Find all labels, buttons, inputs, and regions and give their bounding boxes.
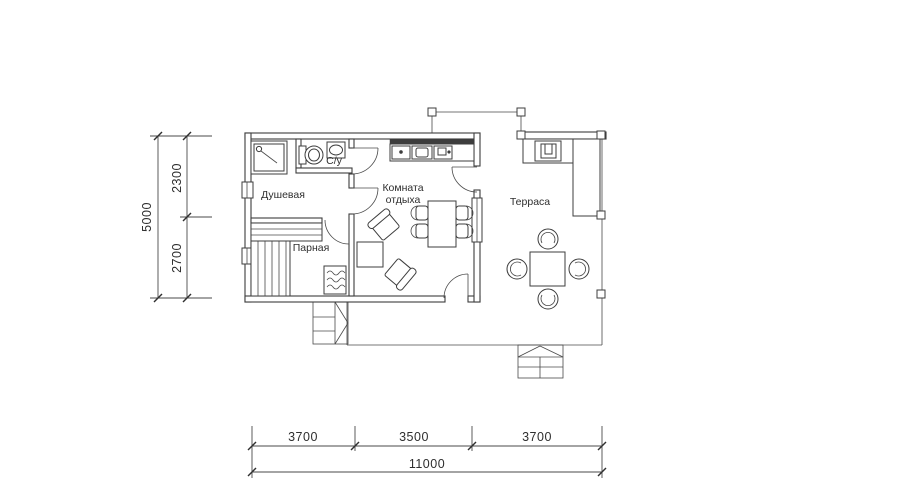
floor-plan-drawing: Душевая С/у Парная Комната отдыха Террас…: [0, 0, 900, 502]
dim-width-middle: 3500: [399, 430, 429, 444]
terrace-chair-icon: [507, 259, 527, 279]
room-label-wc: С/у: [326, 155, 343, 167]
dim-height-top: 2300: [170, 163, 184, 193]
door-arc: [352, 188, 378, 214]
terrace-side-counter: [573, 139, 600, 216]
canopy-outline: [428, 108, 525, 133]
terrace-chair-icon: [538, 229, 558, 249]
grill-icon: [535, 141, 561, 161]
window: [472, 198, 482, 242]
dim-width-right: 3700: [522, 430, 552, 444]
door-arc: [444, 274, 468, 298]
door-arc: [452, 167, 477, 192]
armchair-icon: [383, 257, 417, 292]
kitchen-counter-icon: [390, 139, 474, 161]
door-arc: [325, 220, 349, 244]
chair-icon: [411, 206, 428, 220]
terrace-table-icon: [530, 252, 565, 286]
entrance-steps-icon: [313, 302, 348, 344]
armchair-icon: [367, 208, 402, 242]
shower-cabin-icon: [251, 141, 287, 174]
door-arc: [352, 148, 378, 174]
room-label-shower: Душевая: [261, 189, 305, 201]
terrace-chair-icon: [569, 259, 589, 279]
dimension-bottom: 3700 3500 3700 11000: [248, 426, 606, 478]
dim-total-width: 11000: [409, 457, 445, 471]
dimension-left: 5000 2300 2700: [140, 132, 212, 302]
room-label-lounge-line2: отдыха: [386, 194, 421, 206]
terrace-chair-icon: [538, 289, 558, 309]
dining-table-icon: [411, 201, 473, 247]
dim-height-bottom: 2700: [170, 243, 184, 273]
terrace-steps-icon: [518, 345, 563, 378]
room-label-lounge-line1: Комната: [382, 182, 423, 194]
dim-total-height: 5000: [140, 202, 154, 232]
sauna-stove-icon: [324, 266, 346, 294]
chair-icon: [456, 224, 473, 238]
room-label-steam: Парная: [293, 242, 330, 254]
chair-icon: [411, 224, 428, 238]
chair-icon: [456, 206, 473, 220]
dim-width-left: 3700: [288, 430, 318, 444]
floor-plan-page: Душевая С/у Парная Комната отдыха Террас…: [0, 0, 900, 502]
toilet-icon: [299, 146, 323, 164]
window: [242, 182, 253, 198]
coffee-table-icon: [357, 242, 383, 267]
sauna-bench-icon: [251, 223, 322, 296]
room-label-terrace: Терраса: [510, 196, 550, 208]
